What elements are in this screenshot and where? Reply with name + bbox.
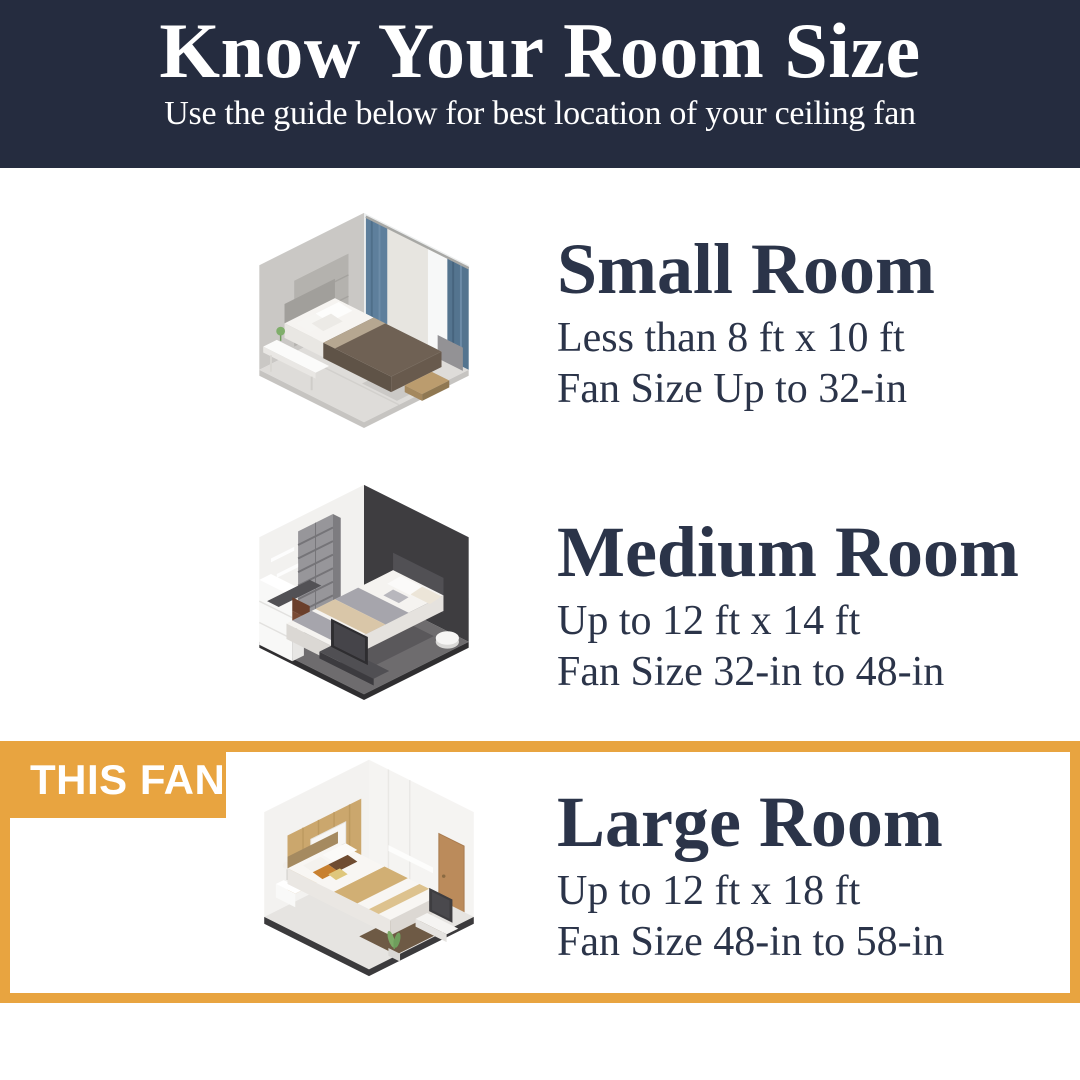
medium-room-section: Medium Room Up to 12 ft x 14 ft Fan Size…	[557, 512, 1019, 695]
small-room-title: Small Room	[557, 229, 935, 310]
large-room-section: Large Room Up to 12 ft x 18 ft Fan Size …	[557, 782, 944, 965]
large-room-fan-size: Fan Size 48-in to 58-in	[557, 919, 944, 965]
page-title: Know Your Room Size	[0, 0, 1080, 90]
room-size-guide-infographic: Know Your Room Size Use the guide below …	[0, 0, 1080, 1080]
large-room-title: Large Room	[557, 782, 944, 863]
small-room-fan-size: Fan Size Up to 32-in	[557, 366, 935, 412]
medium-room-illustration	[238, 475, 490, 707]
medium-room-title: Medium Room	[557, 512, 1019, 593]
page-subtitle: Use the guide below for best location of…	[0, 97, 1080, 131]
medium-room-fan-size: Fan Size 32-in to 48-in	[557, 649, 1019, 695]
medium-room-dimensions: Up to 12 ft x 14 ft	[557, 598, 1019, 644]
small-room-dimensions: Less than 8 ft x 10 ft	[557, 315, 935, 361]
this-fan-badge-label: THIS FAN	[30, 756, 225, 804]
header-banner: Know Your Room Size Use the guide below …	[0, 0, 1080, 168]
large-room-dimensions: Up to 12 ft x 18 ft	[557, 868, 944, 914]
small-room-section: Small Room Less than 8 ft x 10 ft Fan Si…	[557, 229, 935, 412]
small-bedroom-isometric	[238, 203, 490, 435]
medium-bedroom-isometric	[238, 475, 490, 707]
small-room-illustration	[238, 203, 490, 435]
large-room-illustration	[236, 752, 502, 980]
large-bedroom-isometric	[236, 752, 502, 980]
this-fan-badge: THIS FAN	[0, 741, 226, 818]
